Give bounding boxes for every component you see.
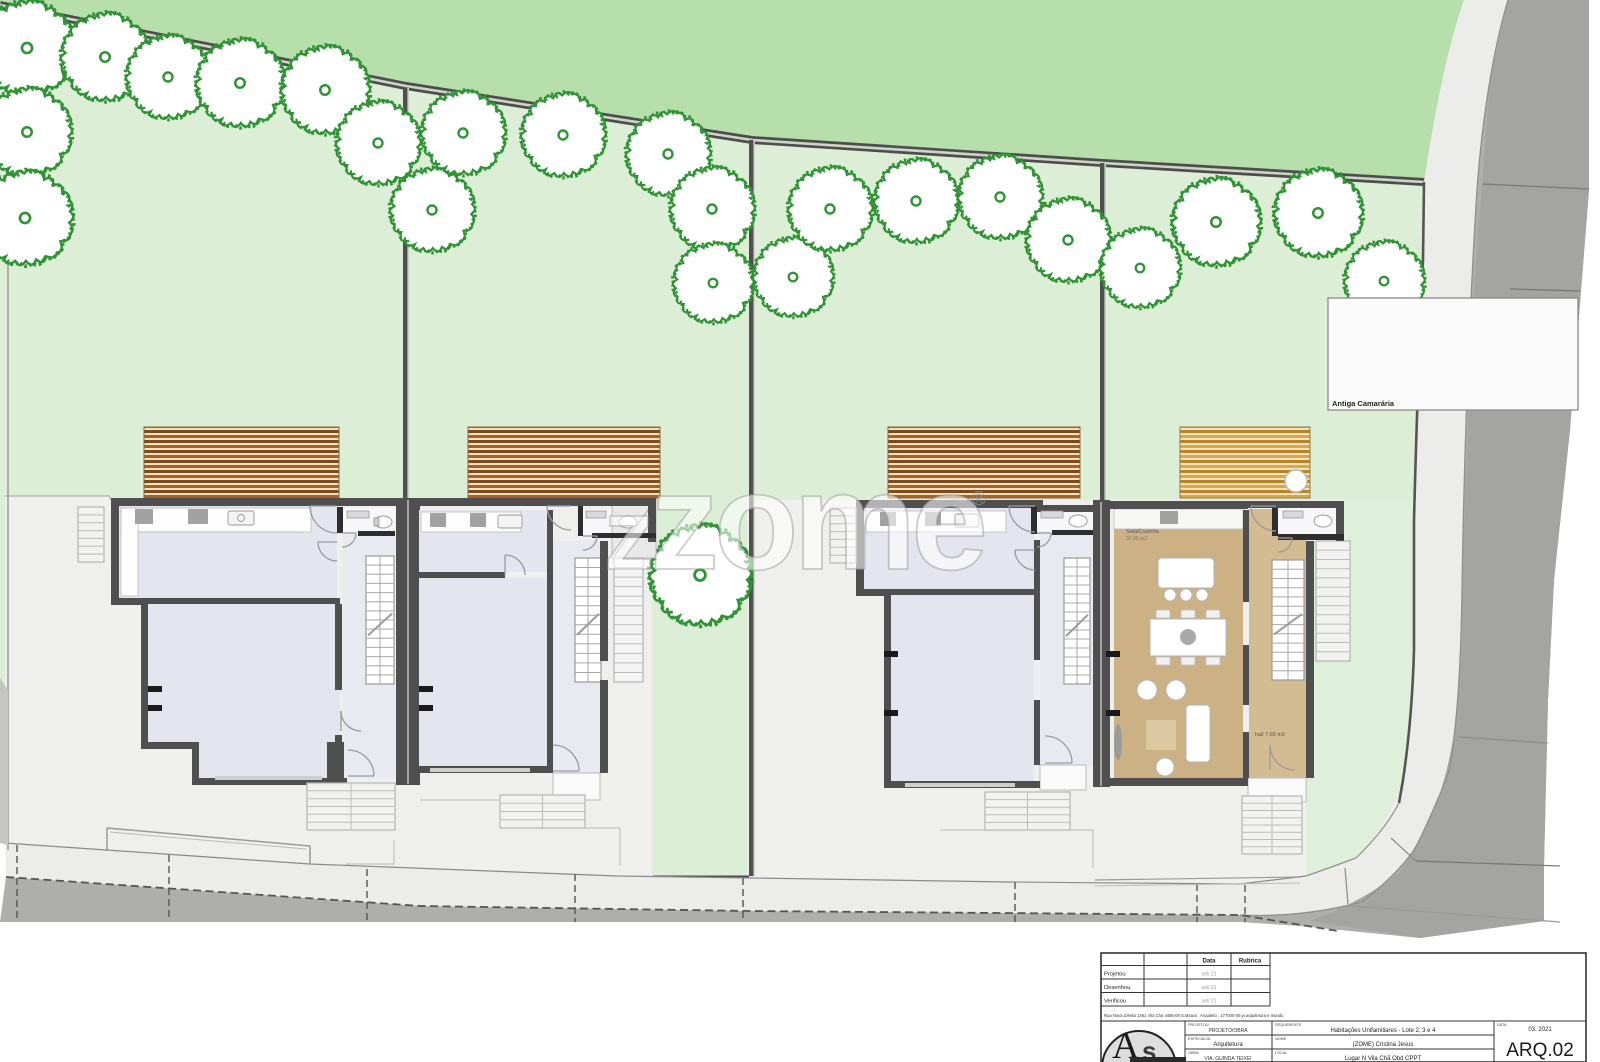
svg-text:37.05 m2: 37.05 m2	[1126, 536, 1147, 542]
svg-text:zome: zome	[650, 445, 988, 599]
svg-text:hall 7.65 m2: hall 7.65 m2	[1255, 732, 1285, 738]
svg-text:ESPECIALID.: ESPECIALID.	[1188, 1037, 1211, 1041]
svg-text:Rua Nova Direita 1461 Vila Cha: Rua Nova Direita 1461 Vila Cha 4485-08 S…	[1104, 1013, 1284, 1018]
svg-text:Verificou: Verificou	[1104, 999, 1126, 1005]
svg-text:PROJETOU: PROJETOU	[1188, 1023, 1209, 1027]
svg-text:LOCAL: LOCAL	[1275, 1051, 1287, 1055]
svg-text:®: ®	[972, 489, 986, 510]
svg-text:ARQ.02: ARQ.02	[1506, 1040, 1574, 1061]
svg-text:Projetou: Projetou	[1104, 972, 1126, 978]
svg-text:NOME: NOME	[1275, 1037, 1287, 1041]
svg-text:Arquitetura: Arquitetura	[1213, 1042, 1243, 1048]
svg-text:PROJETO/OBRA: PROJETO/OBRA	[1208, 1028, 1248, 1034]
svg-text:z: z	[604, 479, 654, 591]
svg-text:Desenhou: Desenhou	[1104, 985, 1130, 991]
svg-text:Sala/Cozinha: Sala/Cozinha	[1126, 529, 1160, 535]
svg-text:Antiga Camarária: Antiga Camarária	[1332, 399, 1395, 408]
svg-text:Data: Data	[1202, 959, 1216, 965]
svg-text:set/ 21: set/ 21	[1201, 999, 1216, 1005]
svg-text:03. 2021: 03. 2021	[1528, 1027, 1552, 1033]
svg-text:OBRA: OBRA	[1188, 1051, 1199, 1055]
svg-text:DATA: DATA	[1497, 1023, 1507, 1027]
svg-text:set/ 21: set/ 21	[1201, 985, 1216, 991]
svg-text:A: A	[1112, 1025, 1140, 1062]
svg-text:(ZOME) Cristina Jesus: (ZOME) Cristina Jesus	[1353, 1042, 1414, 1048]
svg-text:Habitações Unifamiliares - Lot: Habitações Unifamiliares - Lote 2, 3 e 4	[1330, 1028, 1436, 1034]
svg-text:VIA. GUINDA TEIXEI: VIA. GUINDA TEIXEI	[1204, 1056, 1251, 1062]
svg-text:set/ 21: set/ 21	[1201, 972, 1216, 978]
svg-text:Lugar N Vila Chã Obd CPPT: Lugar N Vila Chã Obd CPPT	[1345, 1056, 1422, 1062]
svg-text:Rubrica: Rubrica	[1239, 959, 1262, 965]
svg-text:REQUERENTE: REQUERENTE	[1275, 1023, 1302, 1027]
